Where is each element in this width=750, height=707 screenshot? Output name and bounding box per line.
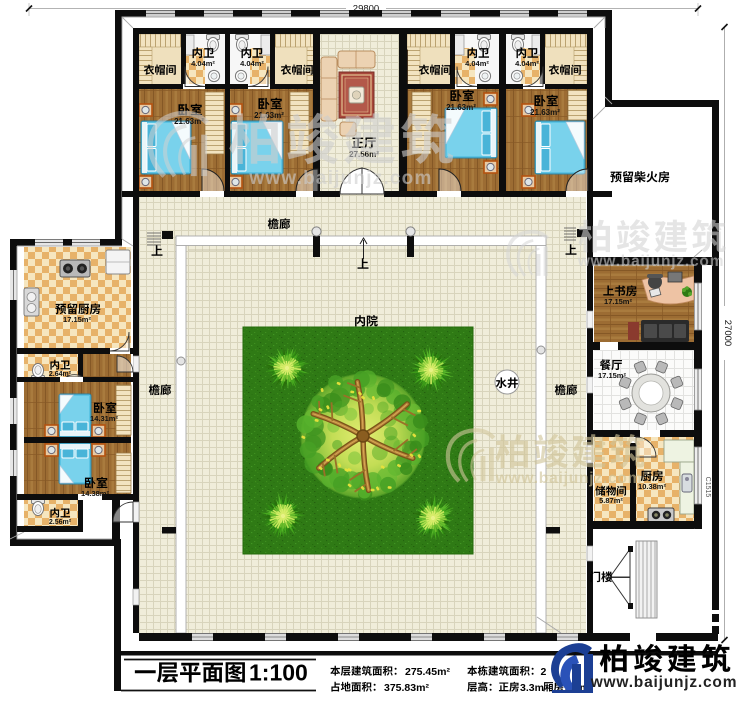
svg-text:17.15m²: 17.15m² [63, 315, 91, 324]
svg-text:14.31m²: 14.31m² [90, 414, 118, 423]
svg-text:17.15m²: 17.15m² [598, 371, 626, 380]
svg-text:375.83m²: 375.83m² [384, 682, 429, 694]
svg-text:4.04m²: 4.04m² [240, 59, 264, 68]
svg-text:4.04m²: 4.04m² [191, 59, 215, 68]
svg-text:17.15m²: 17.15m² [604, 297, 632, 306]
svg-text:275.45m²: 275.45m² [405, 666, 450, 678]
svg-text:4.04m²: 4.04m² [515, 59, 539, 68]
svg-text:2: 2 [541, 666, 547, 678]
svg-text:1:100: 1:100 [249, 660, 308, 686]
svg-text:2.64m²: 2.64m² [49, 371, 72, 378]
svg-text:27000: 27000 [722, 320, 733, 346]
svg-text:www.baijunjz.com: www.baijunjz.com [577, 253, 725, 270]
svg-text:C1515: C1515 [704, 477, 711, 498]
svg-text:21.63m²: 21.63m² [254, 111, 284, 120]
svg-text:www.baijunjz.com: www.baijunjz.com [495, 470, 643, 487]
svg-text:21.63m²: 21.63m² [446, 103, 476, 112]
svg-text:14.38m²: 14.38m² [81, 489, 109, 498]
svg-text:3.3m: 3.3m [520, 682, 544, 694]
svg-text:21.63m²: 21.63m² [530, 108, 560, 117]
svg-text:www.baijunjz.com: www.baijunjz.com [248, 168, 432, 189]
svg-text:4.04m²: 4.04m² [465, 59, 489, 68]
svg-text:5.87m²: 5.87m² [599, 496, 623, 505]
svg-text:www.baijunjz.com: www.baijunjz.com [590, 674, 738, 691]
svg-text:2.56m²: 2.56m² [49, 519, 72, 526]
